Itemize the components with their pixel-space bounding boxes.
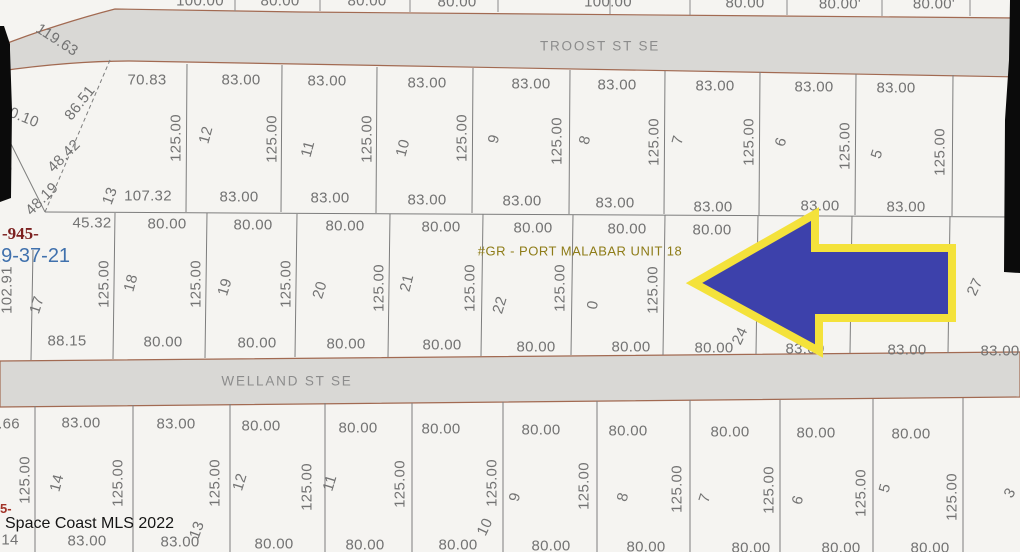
- dimension-label: 83.00: [693, 199, 732, 216]
- troost-street-label: TROOST ST SE: [540, 39, 660, 54]
- plat-map: 100.0080.0080.0080.00100.0080.0080.00'80…: [0, 0, 1020, 552]
- dimension-label: 80.00: [326, 336, 365, 353]
- dimension-label: 70.83: [127, 72, 166, 89]
- lot-number: 7: [669, 134, 688, 147]
- dimension-label: 83.00: [511, 76, 550, 93]
- lot-number: 11: [298, 139, 319, 159]
- dimension-label: 80.00: [796, 425, 835, 442]
- lot-number: 13: [99, 185, 121, 207]
- plat-unit-label: #GR - PORT MALABAR UNIT 18: [478, 244, 682, 259]
- lot-depth-label: 125.00: [669, 465, 686, 513]
- lot-number: 10: [393, 137, 414, 158]
- lot-number: 18: [121, 272, 142, 293]
- lot-number: 22: [489, 294, 510, 316]
- lot-number: 8: [614, 491, 633, 504]
- lot-depth-label: 125.00: [761, 466, 778, 514]
- dimension-label: 80.00: [821, 540, 860, 552]
- lot-number: 9: [485, 133, 504, 146]
- dimension-label: .66: [0, 416, 20, 433]
- dimension-label: 83.00: [219, 189, 258, 206]
- boundary-length-label: 102.91: [0, 266, 16, 314]
- dimension-labels-layer: 100.0080.0080.0080.00100.0080.0080.00'80…: [0, 0, 1020, 552]
- dimension-label: 83.00: [800, 198, 839, 215]
- dimension-label: 80.00: [608, 423, 647, 440]
- lot-number: 7: [696, 491, 715, 504]
- dimension-label: 83.00: [794, 79, 833, 96]
- dimension-label: 80.00: [891, 426, 930, 443]
- dimension-label: 100.00: [176, 0, 224, 10]
- dimension-label: 83.00: [67, 533, 106, 550]
- lot-number: 3: [1000, 485, 1019, 501]
- lot-depth-label: 125.00: [392, 460, 409, 508]
- dimension-label: 80.00: [692, 222, 731, 239]
- lot-depth-label: 125.00: [359, 115, 376, 163]
- lot-depth-label: 125.00: [264, 115, 281, 163]
- lot-depth-label: 125.00: [645, 266, 662, 314]
- dimension-label: 45.32: [72, 215, 111, 232]
- dimension-label: 80.00': [819, 0, 861, 13]
- dimension-label: 80.00: [626, 539, 665, 552]
- lot-depth-label: 125.00: [207, 459, 224, 507]
- lot-number: 20: [309, 279, 330, 301]
- dimension-label: 80.00: [910, 540, 949, 552]
- lot-depth-label: 125.00: [17, 456, 34, 504]
- lot-number: 5: [876, 482, 895, 495]
- lot-depth-label: 125.00: [168, 114, 185, 162]
- dimension-label: 83.00: [160, 534, 199, 551]
- lot-depth-label: 125.00: [837, 122, 854, 170]
- dimension-label: 83.00: [597, 77, 636, 94]
- dimension-label: 80.00: [345, 537, 384, 552]
- dimension-label: 80.00: [438, 537, 477, 552]
- dimension-label: 80.00: [516, 339, 555, 356]
- dimension-label: 80.00: [237, 335, 276, 352]
- dimension-label: 83.00: [407, 192, 446, 209]
- dimension-label: 80.00: [710, 424, 749, 441]
- dimension-label: 80.00: [531, 538, 570, 552]
- lot-number: 21: [397, 273, 418, 294]
- dimension-label: 14: [1, 532, 18, 549]
- lot-depth-label: 125.00: [462, 264, 479, 312]
- lot-number: 6: [789, 493, 808, 506]
- boundary-length-label: 48.42: [44, 136, 84, 176]
- dimension-label: 83.00: [785, 341, 824, 358]
- dimension-label: 80.00: [521, 422, 560, 439]
- lot-number: 0: [584, 299, 602, 310]
- dimension-label: 80.00: [421, 219, 460, 236]
- dimension-label: 100.00: [584, 0, 632, 11]
- lot-depth-label: 125.00: [853, 469, 870, 517]
- lot-number: 19: [214, 276, 235, 298]
- lot-depth-label: 125.00: [576, 462, 593, 510]
- lot-depth-label: 125.00: [371, 264, 388, 312]
- boundary-length-label: 30.10: [0, 101, 41, 131]
- boundary-length-label: 119.63: [33, 20, 81, 60]
- lot-depth-label: 125.00: [110, 459, 127, 507]
- lot-depth-label: 125.00: [484, 459, 501, 507]
- boundary-length-label: 48.19: [22, 179, 62, 219]
- dimension-label: 83.00: [310, 190, 349, 207]
- lot-number: 8: [576, 134, 595, 147]
- dimension-label: 83.00: [61, 415, 100, 432]
- lot-depth-label: 125.00: [932, 128, 949, 176]
- dimension-label: 80.00': [913, 0, 955, 13]
- lot-depth-label: 125.00: [96, 260, 113, 308]
- lot-number: 17: [26, 294, 48, 316]
- dimension-label: 80.00: [260, 0, 299, 10]
- welland-street-label: WELLAND ST SE: [221, 374, 352, 389]
- lot-depth-label: 125.00: [454, 114, 471, 162]
- dimension-label: 83.00: [156, 416, 195, 433]
- lot-depth-label: 125.00: [552, 264, 569, 312]
- dimension-label: 80.00: [233, 217, 272, 234]
- dimension-label: 107.32: [124, 188, 172, 205]
- dimension-label: 80.00: [513, 220, 552, 237]
- lot-number: 12: [196, 124, 217, 145]
- lot-number: 11: [320, 473, 341, 493]
- lot-depth-label: 125.00: [188, 260, 205, 308]
- parcel-code-red-fragment: 5-: [0, 501, 12, 516]
- dimension-label: 80.00: [254, 536, 293, 552]
- dimension-label: 83.00: [695, 78, 734, 95]
- dimension-label: 80.00: [421, 421, 460, 438]
- dimension-label: 80.00: [143, 334, 182, 351]
- dimension-label: 83.00: [887, 342, 926, 359]
- dimension-label: 83.00: [886, 199, 925, 216]
- dimension-label: 88.15: [47, 333, 86, 350]
- dimension-label: 80.00: [731, 540, 770, 552]
- dimension-label: 80.00: [422, 337, 461, 354]
- dimension-label: 80.00: [338, 420, 377, 437]
- dimension-label: 80.00: [694, 340, 733, 357]
- lot-number: 12: [229, 471, 250, 493]
- section-township-range: 29-37-21: [0, 245, 70, 268]
- dimension-label: 80.00: [347, 0, 386, 10]
- dimension-label: 83.00: [595, 195, 634, 212]
- lot-number: 9: [506, 491, 525, 504]
- lot-depth-label: 125.00: [278, 260, 295, 308]
- lot-depth-label: 125.00: [646, 118, 663, 166]
- dimension-label: 80.00: [607, 221, 646, 238]
- mls-watermark: Space Coast MLS 2022: [5, 515, 174, 533]
- lot-depth-label: 125.00: [944, 473, 961, 521]
- lot-number: 10: [474, 516, 497, 539]
- dimension-label: 83.00: [876, 80, 915, 97]
- dimension-label: 83.00: [221, 72, 260, 89]
- boundary-length-label: 86.51: [61, 82, 98, 123]
- dimension-label: 83.00: [407, 75, 446, 92]
- dimension-label: 80.00: [241, 418, 280, 435]
- dimension-label: 83.00: [307, 73, 346, 90]
- dimension-label: 80.00: [611, 339, 650, 356]
- dimension-label: 80.00: [325, 218, 364, 235]
- lot-number: 14: [47, 472, 68, 493]
- dimension-label: 80.00: [725, 0, 764, 12]
- dimension-label: 83.00: [502, 193, 541, 210]
- lot-number: 27: [964, 276, 987, 299]
- lot-depth-label: 125.00: [741, 118, 758, 166]
- dimension-label: 83.00: [980, 343, 1019, 360]
- boundary-length-label: 5: [0, 159, 16, 177]
- lot-number: 5: [868, 147, 887, 160]
- dimension-label: 80.00: [437, 0, 476, 11]
- lot-depth-label: 125.00: [299, 463, 316, 511]
- lot-number: 6: [772, 135, 791, 148]
- lot-depth-label: 125.00: [549, 117, 566, 165]
- parcel-code-red: -945-: [2, 224, 39, 244]
- dimension-label: 80.00: [147, 216, 186, 233]
